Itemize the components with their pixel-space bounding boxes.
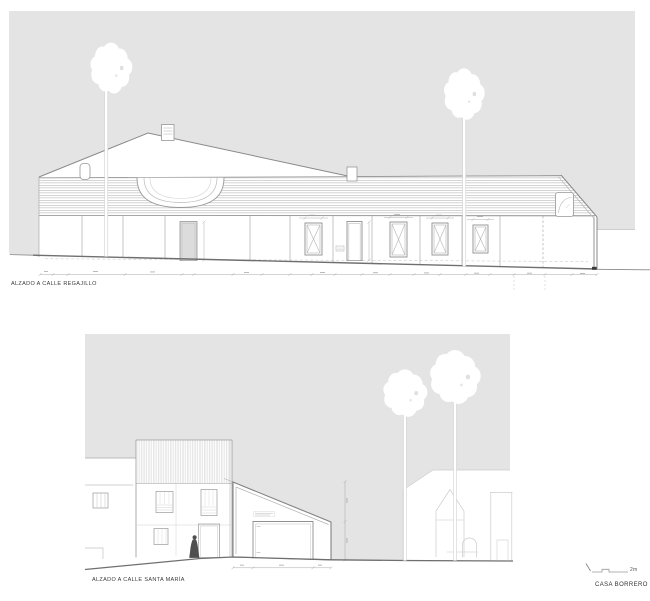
ground-line — [10, 255, 650, 270]
window — [390, 222, 407, 257]
dormer-window — [556, 193, 574, 217]
bottom-elevation — [85, 334, 513, 570]
window — [201, 490, 217, 516]
scale-text: 2m — [630, 567, 637, 573]
shuttered-windows — [305, 222, 488, 257]
window — [154, 529, 168, 545]
mid-chimney — [347, 167, 357, 181]
neighbour-house-low — [85, 458, 136, 559]
service-door — [180, 222, 197, 261]
top-elevation — [9, 11, 650, 290]
entrance-door — [336, 222, 362, 261]
door-sign — [336, 246, 344, 251]
elevation-drawings — [0, 0, 650, 601]
bottom-elevation-label: ALZADO A CALLE SANTA MARÍA — [92, 577, 185, 583]
neighbour-house-tall — [136, 440, 232, 558]
person-silhouette — [189, 535, 199, 558]
scale-bar — [586, 564, 628, 573]
chimney — [162, 125, 175, 141]
dimension-chain — [39, 271, 599, 290]
top-elevation-label: ALZADO A CALLE REGAJILLO — [11, 281, 97, 287]
background-buildings — [403, 470, 513, 561]
garage-opening — [253, 522, 313, 560]
window — [432, 223, 448, 255]
door — [199, 524, 220, 558]
window — [156, 492, 173, 513]
window — [305, 223, 322, 255]
drawing-sheet: ALZADO A CALLE REGAJILLO ALZADO A CALLE … — [0, 0, 650, 601]
siding-band — [39, 176, 597, 217]
base-dashed-line — [45, 259, 588, 262]
window — [93, 493, 108, 508]
window — [473, 225, 488, 253]
roof-vent — [80, 164, 90, 180]
project-title: CASA BORRERO — [595, 582, 648, 588]
